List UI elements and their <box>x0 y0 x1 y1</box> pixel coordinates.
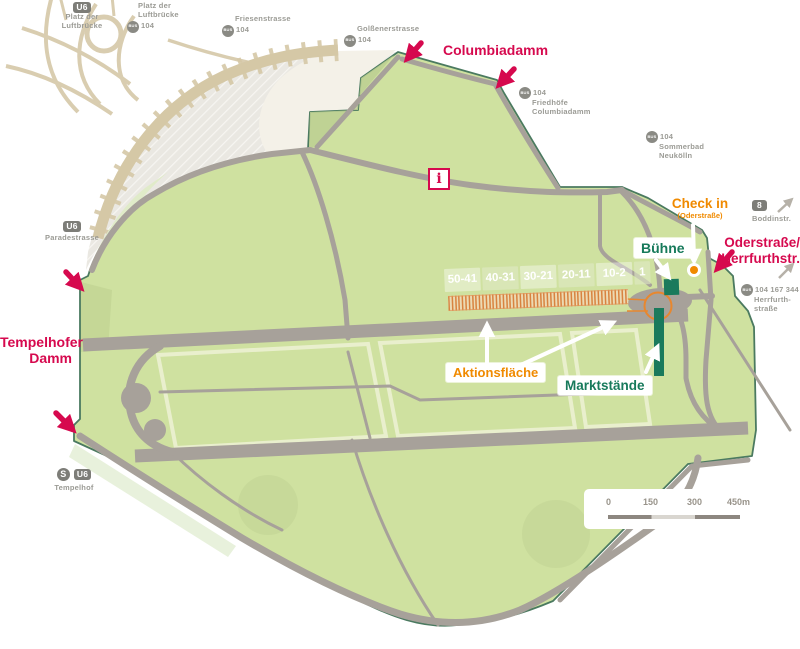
scale-tick: 300 <box>687 497 702 507</box>
station-name: Luftbrücke <box>62 21 103 30</box>
entrance-line: Damm <box>0 350 72 366</box>
map-svg <box>0 0 800 649</box>
station-u8-boddin: 8 Boddinstr. <box>752 200 791 224</box>
stall-section-box: 30-21 <box>520 265 557 289</box>
checkin-dot <box>690 266 698 274</box>
bus-route: 104 167 344 <box>755 286 799 295</box>
scale-line <box>608 515 740 519</box>
station-name: Friesenstrasse <box>235 15 291 24</box>
grove-circle <box>522 500 590 568</box>
bus-badge: BUS <box>127 21 139 33</box>
grove-circle <box>238 475 298 535</box>
bus-badge: BUS <box>519 87 531 99</box>
bus-stop-friedhoefe: BUS 104 Friedhöfe Columbiadamm <box>519 86 591 117</box>
checkin-subtitle: (Oderstraße) <box>658 211 742 220</box>
bus-stop-herrfurth: BUS 104 167 344 Herrfurth- straße <box>741 283 799 314</box>
stall-section-box: 40-31 <box>482 266 519 290</box>
u8-badge: 8 <box>752 200 767 211</box>
bus-route: 104 <box>141 22 154 31</box>
station-name: straße <box>754 305 799 314</box>
bus-badge: BUS <box>646 131 658 143</box>
scale-tick: 450m <box>727 497 750 507</box>
stage-square <box>664 279 680 296</box>
tempelhofer-feld-map: 50-41 40-31 30-21 20-11 10-2 1 i U6 Plat… <box>0 0 800 649</box>
stall-section-box: 20-11 <box>558 263 595 287</box>
station-name: Paradestrasse <box>40 234 104 243</box>
bus-stop-friesenstrasse: Friesenstrasse BUS 104 <box>222 15 291 37</box>
entrance-line: Oderstraße/ <box>700 235 800 251</box>
bus-badge: BUS <box>344 35 356 47</box>
scale-tick: 150 <box>643 497 658 507</box>
info-icon: i <box>428 168 450 190</box>
bus-stop-luftbruecke: Platz der Luftbrücke BUS 104 <box>127 2 179 33</box>
station-s-u6-tempelhof: S U6 Tempelhof <box>42 468 106 493</box>
stall-section-box: 50-41 <box>444 268 481 292</box>
bus-badge: BUS <box>222 25 234 37</box>
station-name: Neukölln <box>659 152 704 161</box>
checkin-title: Check in <box>658 196 742 211</box>
entrance-label-oderstrasse: Oderstraße/ Herrfurthstr. <box>700 235 800 266</box>
aktionsflaeche-label: Aktionsfläche <box>446 363 545 382</box>
entrance-arrow-icon <box>500 69 514 84</box>
bus-stop-golssenerstrasse: Golßenerstrasse BUS 104 <box>344 25 419 47</box>
entrance-line: Tempelhofer <box>0 334 72 350</box>
scale-bar: 0 150 300 450m <box>584 489 762 529</box>
station-name: Luftbrücke <box>138 11 179 20</box>
scale-tick: 0 <box>606 497 611 507</box>
station-name: Golßenerstrasse <box>357 25 419 34</box>
station-name: Columbiadamm <box>532 108 591 117</box>
sbahn-badge: S <box>57 468 70 481</box>
taxiway-blob <box>121 383 151 413</box>
stall-section-box: 10-2 <box>596 262 633 286</box>
station-name: Platz der <box>65 12 98 21</box>
entrance-line: Herrfurthstr. <box>700 251 800 267</box>
stage-label: Bühne <box>634 238 692 258</box>
station-name: Boddinstr. <box>752 215 791 224</box>
checkin-label: Check in (Oderstraße) <box>658 196 742 220</box>
herrfurth-arrow-icon <box>779 265 792 278</box>
entrance-arrow-icon <box>66 272 80 287</box>
u6-badge: U6 <box>74 469 91 480</box>
u6-badge: U6 <box>63 221 80 232</box>
bus-stop-sommerbad: BUS 104 Sommerbad Neukölln <box>646 130 704 161</box>
stall-section-box: 1 <box>634 261 651 285</box>
station-u6-paradestrasse: U6 Paradestrasse <box>40 221 104 243</box>
bus-route: 104 <box>358 36 371 45</box>
bus-route: 104 <box>660 133 673 142</box>
bus-badge: BUS <box>741 284 753 296</box>
station-u6-luftbruecke: U6 Platz der Luftbrücke <box>52 2 112 31</box>
bus-route: 104 <box>533 89 546 98</box>
market-stalls-bar <box>654 308 664 376</box>
entrance-arrow-icon <box>56 413 72 429</box>
taxiway-blob <box>144 419 166 441</box>
checkin-arrow-icon <box>693 225 694 260</box>
entrance-label-columbiadamm: Columbiadamm <box>443 42 548 58</box>
station-name: Tempelhof <box>42 484 106 493</box>
entrance-label-tempelhofer-damm: Tempelhofer Damm <box>0 334 72 366</box>
marktstaende-label: Marktstände <box>558 376 652 395</box>
bus-route: 104 <box>236 26 249 35</box>
